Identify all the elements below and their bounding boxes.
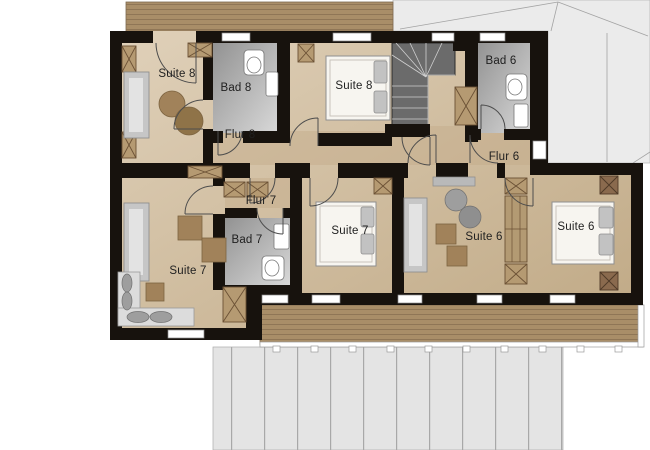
room-label-flur-8: Flur 8 (225, 129, 256, 141)
sink-bad-8 (266, 72, 278, 96)
floor-plan: Suite 8 Bad 8 Flur 8 Suite 8 Bad 6 Flur … (0, 0, 650, 450)
balcony-top (126, 2, 393, 31)
bed-suite-6 (552, 202, 614, 264)
room-label-suite-7-bedroom: Suite 7 (331, 225, 368, 237)
room-label-suite-8-living: Suite 8 (158, 68, 195, 80)
table-suite-6 (436, 224, 456, 244)
table-suite-7 (178, 216, 202, 240)
wardrobe (505, 178, 527, 284)
toilet-bad-7 (262, 256, 284, 280)
sink-bad-7 (274, 224, 289, 249)
chair-suite-6b (459, 206, 481, 228)
room-label-bad-8: Bad 8 (220, 82, 251, 94)
shelf-suite-6 (433, 177, 475, 186)
table-suite-7b (202, 238, 226, 262)
sofa-suite-6 (404, 198, 427, 272)
sofa-suite-7 (124, 203, 149, 281)
room-label-flur-6: Flur 6 (489, 151, 520, 163)
room-label-suite-6-bedroom: Suite 6 (557, 221, 594, 233)
room-label-flur-7: Flur 7 (246, 195, 277, 207)
table-suite-7c (146, 283, 164, 301)
table-suite-8b (175, 107, 203, 135)
toilet-bad-8 (244, 50, 264, 75)
room-label-suite-8-bedroom: Suite 8 (335, 80, 372, 92)
lower-terrace (213, 347, 563, 450)
table-suite-6b (447, 246, 467, 266)
balcony-bottom (260, 305, 644, 352)
room-label-suite-6-living: Suite 6 (465, 231, 502, 243)
room-label-suite-7-living: Suite 7 (169, 265, 206, 277)
room-label-bad-7: Bad 7 (231, 234, 262, 246)
toilet-bad-6 (506, 74, 527, 100)
sofa-suite-8 (124, 72, 149, 138)
floor-plan-drawing (0, 0, 650, 450)
sink-bad-6 (514, 104, 528, 127)
room-label-bad-6: Bad 6 (485, 55, 516, 67)
